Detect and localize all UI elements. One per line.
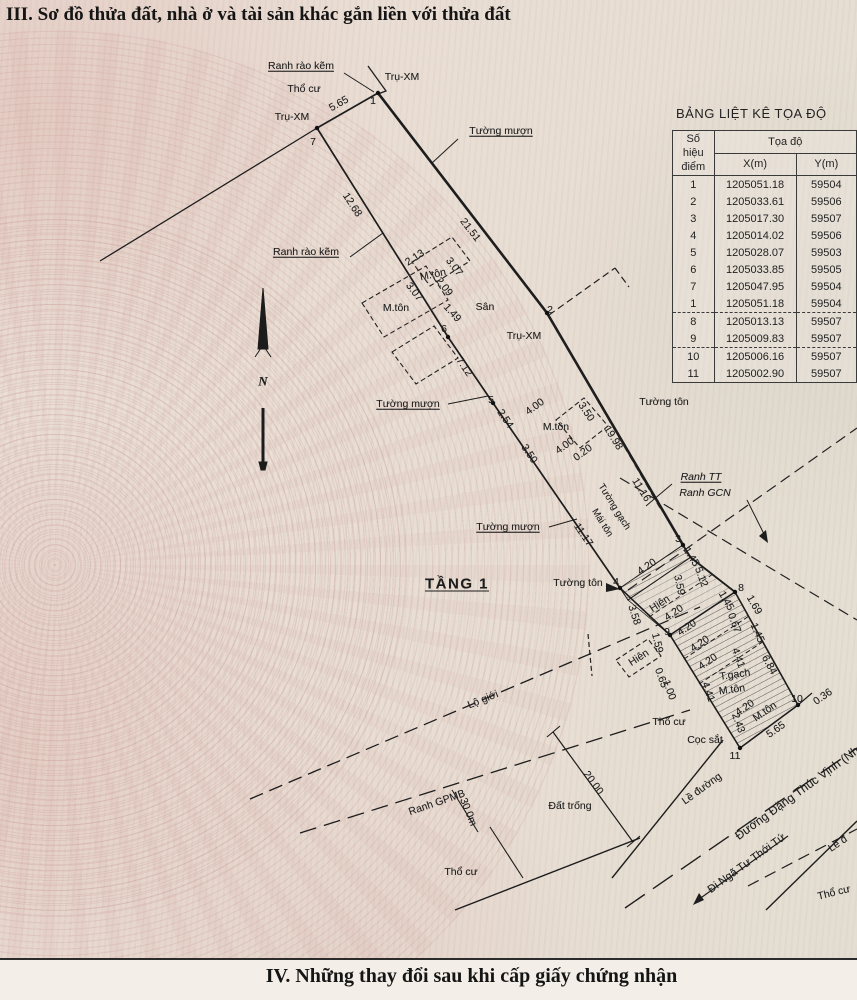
dim-420e: 4.20	[697, 652, 720, 672]
dim-100: 1.00	[661, 679, 678, 702]
col-header-coords: Tọa độ	[714, 131, 857, 154]
road-lines	[455, 740, 857, 910]
building-structures	[606, 545, 812, 748]
dim-420a: 4.20	[636, 557, 659, 577]
label-tuong-muon-mid: Tường mượn	[376, 399, 439, 410]
point-label-9: 9	[664, 627, 670, 638]
point-label-6: 6	[441, 324, 447, 335]
dim-254: 2.54	[495, 408, 515, 431]
guilloche-rosette-inner	[0, 210, 410, 920]
dim-2151: 21.51	[458, 216, 482, 243]
coord-table-title: BẢNG LIỆT KÊ TỌA ĐỘ	[676, 106, 827, 121]
dim-159: 1.59	[649, 632, 664, 654]
dim-020: 0.20	[572, 443, 595, 464]
dim-145a: 1.45	[681, 546, 701, 569]
section4-title: IV. Những thay đổi sau khi cấp giấy chứn…	[0, 965, 857, 988]
label-tho-cu-bl: Thổ cư	[444, 867, 477, 878]
col-header-x: X(m)	[714, 153, 796, 176]
dim-2000: 20.00	[581, 769, 605, 796]
dim-067: 0.67	[726, 612, 743, 635]
label-mton-5: M.tôn	[751, 700, 779, 724]
dim-1117: 11.17	[572, 521, 595, 548]
label-duong-dang-thuc-vinh: Đường Đặng Thúc Vịnh (Nh	[733, 744, 857, 842]
label-ranh-rao-kem-top: Ranh rào kẽm	[268, 61, 334, 72]
label-mton-2: M.tôn	[383, 303, 409, 314]
dim-565b: 5.65	[765, 720, 788, 740]
label-le-d-2: Lề đ	[827, 834, 850, 854]
point-label-8: 8	[738, 583, 744, 594]
dim-213: 2.13	[404, 248, 427, 268]
dim-149: 1.49	[441, 302, 462, 324]
label-hien-2: Hiên	[627, 648, 651, 669]
label-tang-1: TẦNG 1	[425, 577, 489, 592]
wall-dashed-lines	[549, 268, 660, 676]
point-label-4: 4	[613, 577, 619, 588]
dim-358: 3.58	[626, 604, 642, 627]
label-coc-sat: Cọc sắt	[687, 735, 723, 746]
dim-036: 0.36	[812, 687, 835, 707]
coord-row: 71205047.9559504	[673, 278, 857, 295]
label-tuong-ton-1: Tường tôn	[639, 397, 689, 408]
coord-row: 21205033.6159506	[673, 193, 857, 210]
dim-512: 5.12	[693, 566, 710, 589]
dim-1116: 11.16	[630, 476, 652, 503]
dim-400a: 4.00	[524, 397, 547, 418]
label-le-duong: Lề đường	[680, 771, 723, 807]
label-san: Sân	[476, 302, 495, 313]
section3-title: III. Sơ đồ thửa đất, nhà ở và tài sản kh…	[6, 4, 511, 26]
col-header-point: Số hiệu điểm	[673, 131, 715, 176]
label-tru-xm-left: Trụ-XM	[275, 112, 310, 123]
coord-row: 101205006.1659507	[673, 348, 857, 366]
label-lo-gioi: Lộ giới	[466, 689, 500, 711]
coord-row: 51205028.0759503	[673, 244, 857, 261]
point-label-5: 5	[488, 395, 494, 406]
label-tho-cu-top: Thổ cư	[287, 84, 320, 95]
dim-712: 7.12	[454, 356, 474, 379]
north-letter: N	[258, 375, 267, 388]
point-label-7: 7	[310, 137, 316, 148]
coord-row: 31205017.3059507	[673, 210, 857, 227]
coord-row: 11205051.1859504	[673, 176, 857, 194]
point-label-3: 3	[675, 534, 681, 545]
label-dat-trong: Đất trống	[548, 801, 591, 812]
coord-row: 61205033.8559505	[673, 261, 857, 278]
dim-300m: 30.0m	[458, 797, 479, 828]
dim-169: 1.69	[744, 594, 763, 617]
dim-684: 6.84	[759, 654, 778, 677]
coord-row: 91205009.8359507	[673, 330, 857, 348]
point-label-1: 1	[370, 96, 376, 107]
dim-420c: 4.20	[676, 618, 699, 638]
dim-350a: 3.50	[576, 401, 596, 424]
dim-145b: 1.45	[716, 590, 735, 613]
point-label-11: 11	[730, 751, 741, 762]
guilloche-rosette	[0, 30, 590, 1000]
label-mton-4: M.tôn	[718, 683, 745, 697]
dim-350b: 3.50	[519, 443, 539, 466]
dim-441b: 4.41	[700, 681, 717, 704]
label-tru-xm-top: Trụ-XM	[385, 72, 420, 83]
setback-lines	[250, 607, 700, 878]
col-header-y: Y(m)	[796, 153, 856, 176]
dim-359: 3.59	[672, 574, 687, 596]
point-label-2: 2	[547, 305, 553, 316]
dim-1998: 19.98	[602, 424, 625, 452]
dim-1268: 12.68	[340, 191, 363, 219]
coord-row: 111205002.9059507	[673, 365, 857, 383]
label-tho-cu-br: Thổ cư	[817, 884, 852, 902]
dim-441a: 4.41	[730, 647, 747, 670]
certificate-page: III. Sơ đồ thửa đất, nhà ở và tài sản kh…	[0, 0, 857, 1000]
label-tuong-muon-low: Tường mượn	[476, 522, 539, 533]
label-di-nga-tu-thoi-tu: Đi Ngã Tư Thới Tứ	[706, 832, 788, 895]
dim-307a: 3.07	[444, 256, 465, 279]
dim-209: 2.09	[434, 276, 455, 299]
dim-307b: 3.07	[404, 281, 425, 304]
label-tru-xm-2: Trụ-XM	[507, 331, 542, 342]
dim-145c: 1.45	[748, 622, 766, 645]
label-tuong-ton-2: Tường tôn	[553, 578, 603, 589]
coord-row: 81205013.1359507	[673, 313, 857, 331]
label-ranh-tt: Ranh TT	[681, 472, 722, 483]
label-ranh-gcn: Ranh GCN	[679, 488, 730, 499]
dim-565-top: 5.65	[328, 94, 351, 113]
coord-table: Số hiệu điểm Tọa độ X(m) Y(m) 11205051.1…	[672, 130, 857, 383]
coord-row: 41205014.0259506	[673, 227, 857, 244]
label-tuong-muon-top: Tường mượn	[469, 126, 532, 137]
label-ranh-rao-kem-2: Ranh rào kẽm	[273, 247, 339, 258]
point-label-10: 10	[791, 694, 803, 705]
label-tho-cu-mid: Thổ cư	[652, 717, 685, 728]
label-mton-3: M.tôn	[543, 422, 569, 433]
label-t-gach: T.gạch	[719, 668, 751, 683]
dim-420d: 4.20	[689, 634, 712, 654]
coord-row: 11205051.1859504	[673, 295, 857, 313]
